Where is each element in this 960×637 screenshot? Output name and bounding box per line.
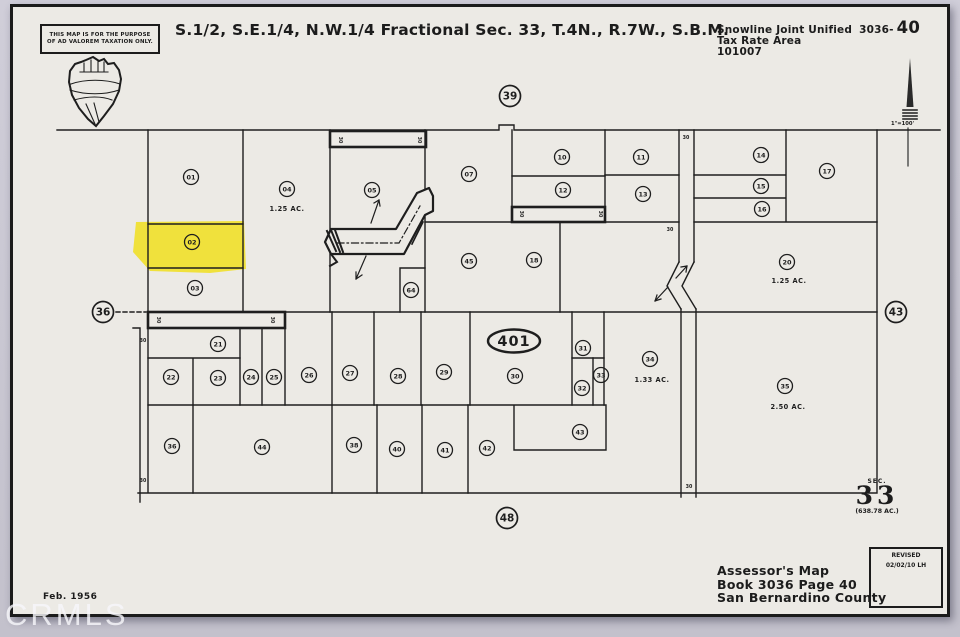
svg-text:07: 07: [464, 170, 473, 178]
svg-text:15: 15: [756, 182, 766, 190]
acreage-label: 1.33 AC.: [634, 376, 669, 384]
svg-text:42: 42: [482, 444, 491, 452]
svg-text:12: 12: [558, 186, 567, 194]
svg-text:05: 05: [367, 186, 377, 194]
parcel-31: 31: [576, 341, 591, 356]
parcel-03: 03: [188, 281, 203, 296]
road-arrow: [676, 266, 687, 278]
parcel-45: 45: [462, 254, 477, 269]
road-width-label: 30: [416, 137, 422, 144]
parcel-43: 43: [573, 425, 588, 440]
road-width-label: 30: [518, 211, 524, 218]
acreage-label: 1.25 AC.: [771, 277, 806, 285]
svg-text:20: 20: [782, 258, 792, 266]
parcel-24: 24: [244, 370, 259, 385]
parcel-21: 21: [211, 337, 226, 352]
road-width-label: 30: [337, 137, 343, 144]
svg-text:01: 01: [186, 173, 196, 181]
parcel-15: 15: [754, 179, 769, 194]
svg-text:23: 23: [213, 374, 222, 382]
taxation-stamp: THIS MAP IS FOR THE PURPOSE OF AD VALORE…: [40, 24, 160, 54]
scale-label: 1"=100': [891, 121, 914, 127]
svg-text:40: 40: [392, 445, 402, 453]
parcel-23: 23: [211, 371, 226, 386]
svg-text:45: 45: [464, 257, 474, 265]
svg-text:04: 04: [282, 185, 292, 193]
svg-text:401: 401: [497, 334, 530, 350]
parcel-05: 05: [365, 183, 380, 198]
county-arrowhead-logo-icon: [69, 57, 121, 126]
parcel-map-drawing: 0102030405071011121314151617182021222324…: [0, 0, 960, 637]
svg-text:27: 27: [345, 369, 354, 377]
parcel-38: 38: [347, 438, 362, 453]
tax-rate-area-block: Snowline Joint Unified 3036- 40 Tax Rate…: [717, 22, 920, 58]
assessors-map-line3: San Bernardino County: [717, 591, 886, 605]
svg-text:25: 25: [269, 373, 279, 381]
revised-box: REVISED 02/02/10 LH: [869, 547, 943, 608]
parcel-42: 42: [480, 441, 495, 456]
stamp-line-2: OF AD VALOREM TAXATION ONLY.: [42, 39, 158, 46]
parcel-44: 44: [255, 440, 270, 455]
svg-text:43: 43: [575, 428, 584, 436]
svg-text:35: 35: [780, 382, 790, 390]
acreage-label: 2.50 AC.: [770, 403, 805, 411]
svg-text:22: 22: [166, 373, 175, 381]
parcel-41: 41: [438, 443, 453, 458]
svg-text:11: 11: [636, 153, 646, 161]
svg-text:30: 30: [510, 372, 520, 380]
parcel-11: 11: [634, 150, 649, 165]
svg-text:21: 21: [213, 340, 223, 348]
svg-text:48: 48: [500, 513, 515, 525]
parcel-linework: [57, 57, 940, 502]
parcel-30: 30: [508, 369, 523, 384]
road-width-label: 30: [686, 484, 693, 490]
flow-arrow: [371, 200, 380, 223]
road-width-label: 30: [667, 227, 674, 233]
svg-text:13: 13: [638, 190, 647, 198]
parcel-64: 64: [404, 283, 419, 298]
book-number: 3036-: [859, 25, 894, 36]
boundary-circle-48: 48: [497, 508, 518, 529]
parcel-25: 25: [267, 370, 282, 385]
flow-arrow: [356, 256, 366, 279]
parcel-17: 17: [820, 164, 835, 179]
svg-text:36: 36: [96, 307, 111, 319]
highlighted-parcel-02-fill: [133, 221, 246, 273]
parcel-35: 35: [778, 379, 793, 394]
boundary-circle-43: 43: [886, 302, 907, 323]
svg-text:17: 17: [822, 167, 831, 175]
svg-text:14: 14: [756, 151, 766, 159]
stamp-line-1: THIS MAP IS FOR THE PURPOSE: [42, 32, 158, 39]
assessors-map-line1: Assessor's Map: [717, 564, 886, 578]
svg-text:38: 38: [349, 441, 359, 449]
parcel-36: 36: [165, 439, 180, 454]
road-width-label: 30: [140, 338, 147, 344]
map-title: S.1/2, S.E.1/4, N.W.1/4 Fractional Sec. …: [175, 21, 729, 39]
revised-label: REVISED: [871, 552, 941, 559]
svg-text:43: 43: [889, 307, 904, 319]
svg-text:32: 32: [577, 384, 586, 392]
parcel-07: 07: [462, 167, 477, 182]
section-acreage: (638.78 AC.): [841, 508, 913, 515]
svg-text:33: 33: [596, 371, 605, 379]
svg-text:41: 41: [440, 446, 450, 454]
parcel-labels-layer: 0102030405071011121314151617182021222324…: [93, 86, 907, 529]
svg-text:02: 02: [187, 238, 196, 246]
assessors-map-line2: Book 3036 Page 40: [717, 578, 886, 592]
crmls-watermark: CRMLS: [5, 597, 129, 633]
road-width-label: 30: [140, 478, 147, 484]
parcel-34: 34: [643, 352, 658, 367]
wash-channel: [325, 188, 433, 254]
parcel-12: 12: [556, 183, 571, 198]
svg-text:03: 03: [190, 284, 199, 292]
scanned-assessor-map-page: 0102030405071011121314151617182021222324…: [0, 0, 960, 637]
svg-text:34: 34: [645, 355, 655, 363]
parcel-04: 04: [280, 182, 295, 197]
svg-text:29: 29: [439, 368, 449, 376]
road-width-label: 30: [597, 211, 603, 218]
tax-rate-area-code: 101007: [717, 47, 920, 58]
parcel-33: 33: [594, 368, 609, 383]
svg-text:39: 39: [503, 91, 518, 103]
parcel-20: 20: [780, 255, 795, 270]
svg-text:31: 31: [578, 344, 588, 352]
assessors-map-block: Assessor's Map Book 3036 Page 40 San Ber…: [717, 564, 886, 605]
road-arrow: [655, 287, 668, 301]
parcel-27: 27: [343, 366, 358, 381]
svg-text:24: 24: [246, 373, 256, 381]
svg-text:44: 44: [257, 443, 267, 451]
parcel-22: 22: [164, 370, 179, 385]
parcel-13: 13: [636, 187, 651, 202]
parcel-16: 16: [755, 202, 770, 217]
svg-text:10: 10: [557, 153, 567, 161]
parcel-40: 40: [390, 442, 405, 457]
parcel-14: 14: [754, 148, 769, 163]
highlight-layer: [133, 221, 246, 273]
svg-text:18: 18: [529, 256, 539, 264]
road-width-label: 30: [155, 317, 161, 324]
svg-text:36: 36: [167, 442, 177, 450]
boundary-circle-39: 39: [500, 86, 521, 107]
boundary-circle-36: 36: [93, 302, 114, 323]
section-number: 33: [841, 481, 913, 510]
parcel-26: 26: [302, 368, 317, 383]
page-number: 40: [897, 22, 920, 33]
acreage-label: 1.25 AC.: [269, 205, 304, 213]
highway-shield-401: 401: [488, 330, 540, 353]
revised-value: 02/02/10 LH: [871, 562, 941, 569]
parcel-28: 28: [391, 369, 406, 384]
parcel-29: 29: [437, 365, 452, 380]
parcel-32: 32: [575, 381, 590, 396]
parcel-18: 18: [527, 253, 542, 268]
road-width-label: 30: [683, 135, 690, 141]
road-width-label: 30: [269, 317, 275, 324]
svg-text:28: 28: [393, 372, 403, 380]
svg-text:26: 26: [304, 371, 314, 379]
parcel-10: 10: [555, 150, 570, 165]
svg-text:16: 16: [757, 205, 767, 213]
north-arrow-icon: [903, 58, 917, 119]
svg-text:64: 64: [406, 286, 416, 294]
parcel-01: 01: [184, 170, 199, 185]
